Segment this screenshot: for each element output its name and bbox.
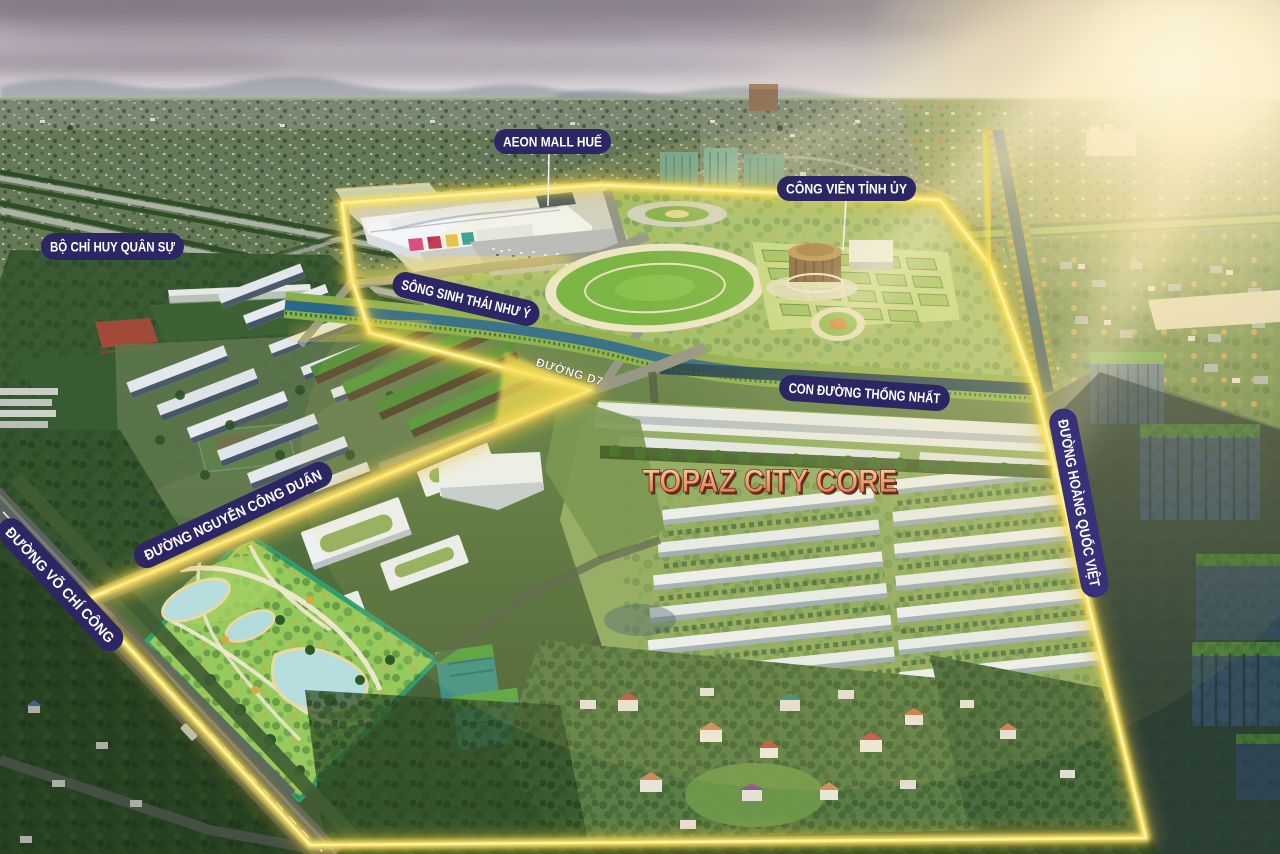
svg-text:CÔNG VIÊN TỈNH ỦY: CÔNG VIÊN TỈNH ỦY xyxy=(786,180,908,197)
svg-text:TOPAZ CITY CORE: TOPAZ CITY CORE xyxy=(643,462,898,499)
svg-text:AEON MALL HUẾ: AEON MALL HUẾ xyxy=(503,134,602,150)
svg-text:BỘ CHỈ HUY QUÂN SỰ: BỘ CHỈ HUY QUÂN SỰ xyxy=(50,238,175,255)
